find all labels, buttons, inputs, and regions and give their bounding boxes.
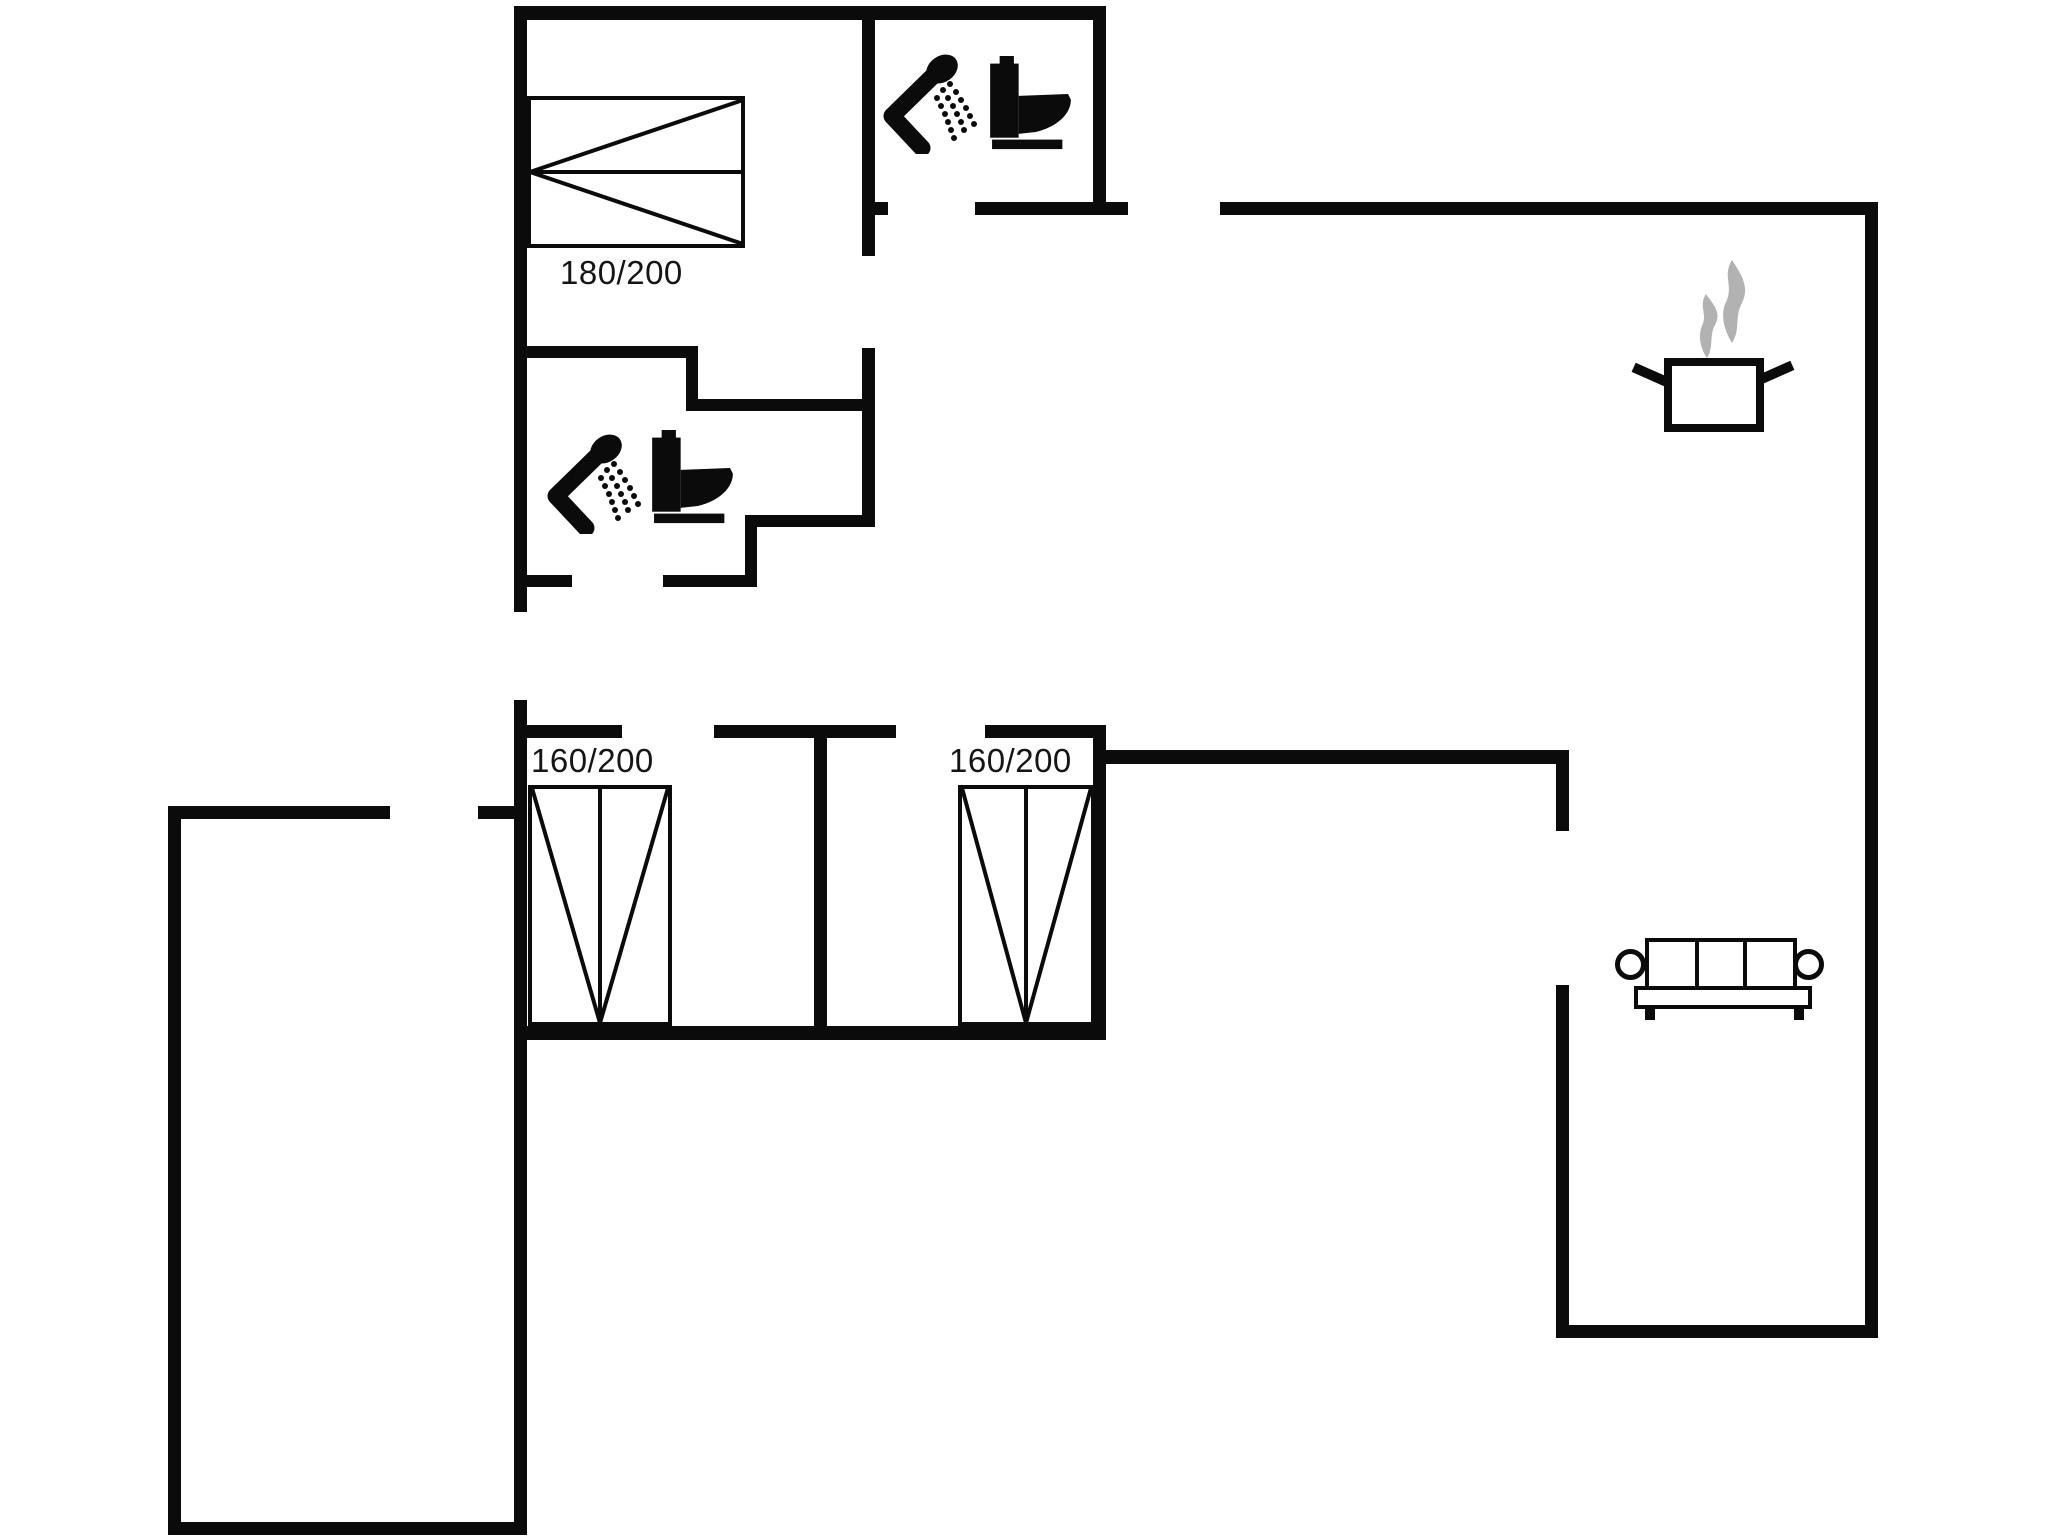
bed-left-icon <box>528 785 672 1026</box>
wall-living-left-lower <box>1556 985 1569 1338</box>
wall-left-lower <box>514 700 527 1535</box>
bed-master-label: 180/200 <box>560 254 683 292</box>
sofa-cushion-divider <box>1743 942 1747 986</box>
bed-left-label: 160/200 <box>531 742 654 780</box>
wall-top-block-top <box>514 6 1106 20</box>
bed-right-icon <box>958 785 1095 1026</box>
shower-icon-middle-bathroom <box>544 432 644 534</box>
wall-terrace-top-stub <box>478 806 515 819</box>
wall-living-bottom <box>1556 1325 1878 1338</box>
shower-icon-top-bathroom <box>880 52 980 154</box>
bed-master-icon <box>527 96 745 248</box>
wall-interior-vertical-mid <box>862 348 875 527</box>
wall-bedblock-top-3 <box>985 725 1106 738</box>
bed-right-label: 160/200 <box>949 742 1072 780</box>
sofa-arm-right <box>1793 949 1824 980</box>
wall-living-top <box>1220 202 1878 215</box>
wall-bathroom2-bottom <box>663 575 757 587</box>
sofa-cushion-divider <box>1695 942 1699 986</box>
wall-living-right <box>1865 202 1878 1338</box>
sofa-arm-left <box>1615 949 1646 980</box>
wall-hall-bottom <box>1100 750 1569 764</box>
cooking-pot-icon <box>1664 358 1764 432</box>
wall-terrace-left <box>168 806 181 1535</box>
toilet-icon-middle-bathroom <box>650 430 736 525</box>
steam-icon <box>1686 260 1756 360</box>
wall-bathroom2-top-a <box>514 346 698 358</box>
wall-bathroom2-right-bar <box>745 515 874 527</box>
wall-bathroom2-bottom-stub <box>514 575 572 587</box>
wall-interior-vertical-upper <box>862 6 875 256</box>
sofa-seat <box>1634 986 1812 1009</box>
sofa-foot-right <box>1794 1007 1804 1020</box>
toilet-icon-top-bathroom <box>990 56 1072 151</box>
wall-left-upper <box>514 6 527 612</box>
wall-bathroom1-bottom-stub <box>862 202 888 215</box>
wall-living-left-upper <box>1556 750 1569 831</box>
wall-top-block-right <box>1093 6 1106 215</box>
wall-bathroom1-bottom <box>975 202 1128 215</box>
wall-bathroom2-top-b <box>686 399 874 411</box>
wall-bedblock-top-2 <box>714 725 896 738</box>
wall-terrace-bottom <box>168 1522 525 1535</box>
wall-bedblock-bottom <box>514 1026 1106 1040</box>
floor-plan: 180/200 160/200 160/200 <box>0 0 2048 1536</box>
wall-terrace-top <box>168 806 390 819</box>
wall-bedblock-middle <box>814 725 827 1040</box>
sofa-icon <box>1645 938 1797 990</box>
wall-bedblock-top-1 <box>514 725 622 738</box>
sofa-foot-left <box>1645 1007 1655 1020</box>
